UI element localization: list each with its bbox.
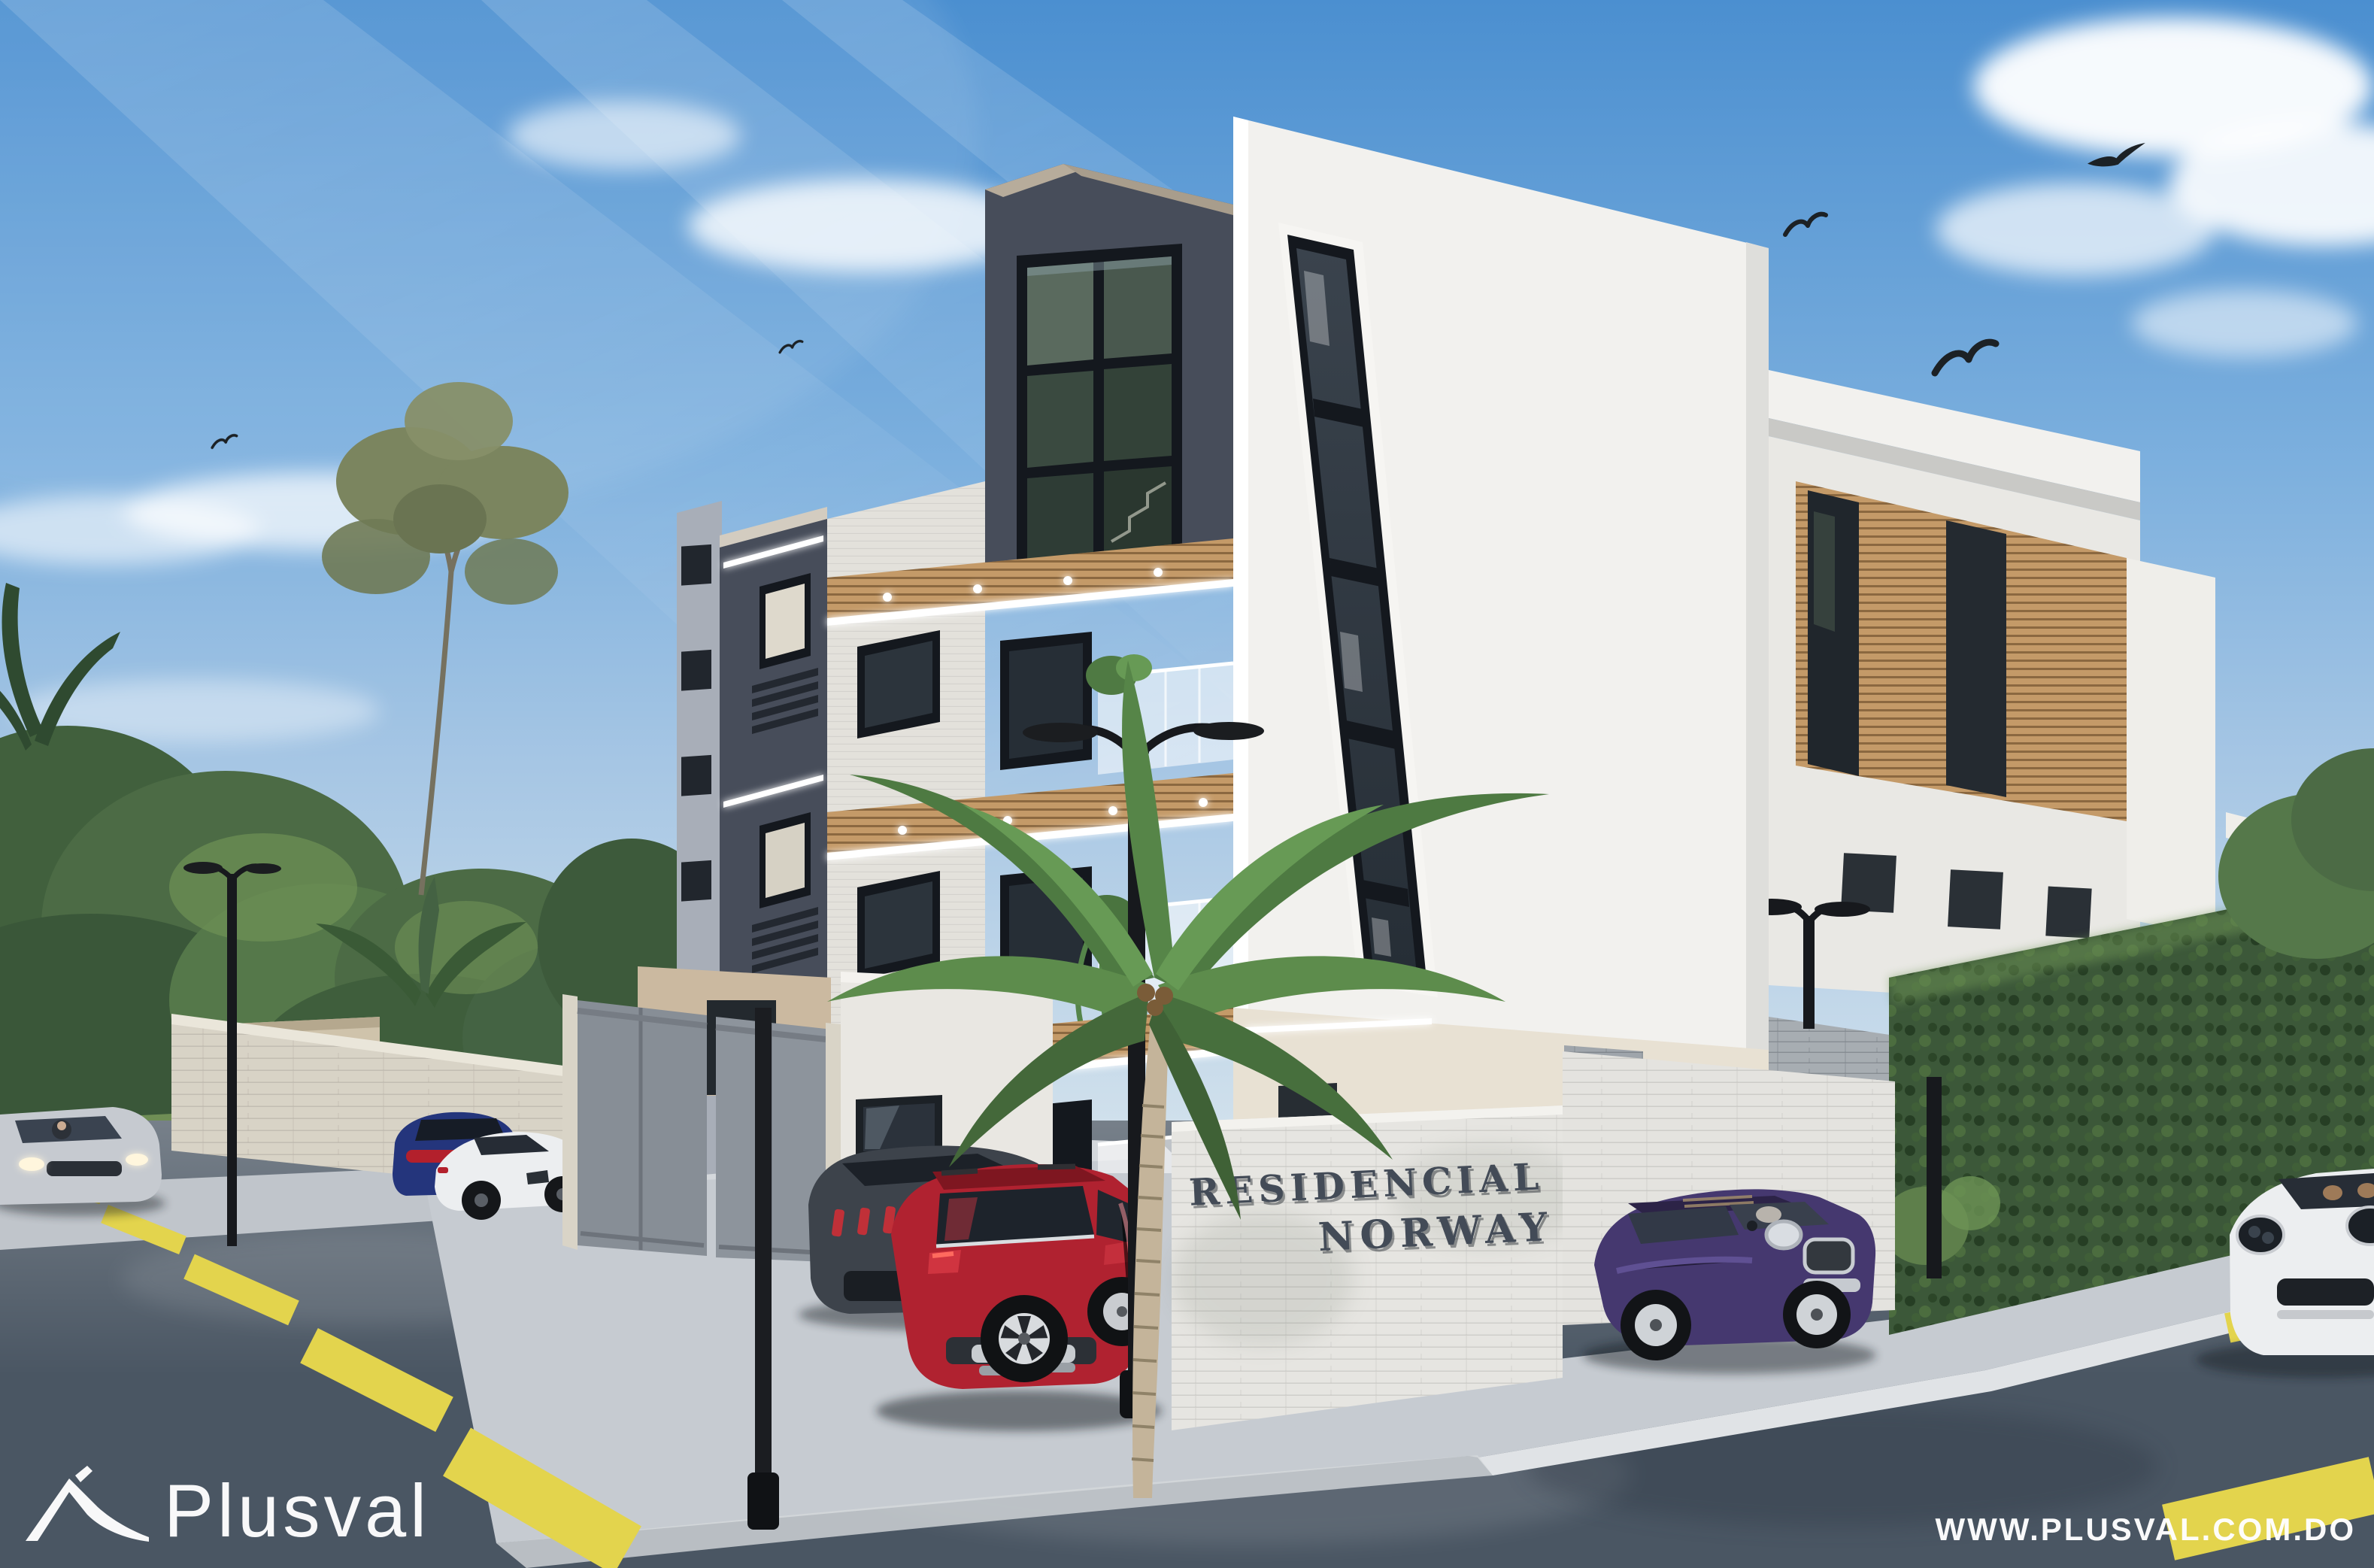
stairwell-window [1017,244,1182,573]
front-lip [2277,1310,2374,1319]
watermark-logo-text: Plusval [164,1476,430,1545]
entry-gate [562,994,841,1263]
render-canvas: RESIDENCIAL RESIDENCIAL NORWAY NORWAY [0,0,2374,1568]
hedge-pole [1927,1077,1942,1278]
headlight [19,1157,44,1171]
street-pole-base [747,1472,779,1530]
headlight [1766,1221,1801,1248]
lamp-head [1023,723,1098,742]
penthouse-monolith [985,164,1233,596]
sign-wall: RESIDENCIAL RESIDENCIAL NORWAY NORWAY [1172,1105,1587,1430]
watermark-logo: Plusval [23,1465,430,1545]
wheel-rear [981,1295,1068,1382]
grille [1805,1239,1853,1272]
street-pole [755,1008,772,1489]
front-intake [2277,1278,2374,1306]
headlight [126,1154,148,1166]
interior-hint [2323,1185,2342,1200]
wheel-front [1783,1281,1851,1348]
wing-window-small [2045,887,2091,939]
gate-post [562,994,578,1250]
headlight [2237,1216,2284,1254]
architectural-render-scene: RESIDENCIAL RESIDENCIAL NORWAY NORWAY [0,0,2374,1568]
watermark-url: WWW.PLUSVAL.COM.DO [1936,1512,2357,1548]
wing-window-small [1948,869,2003,930]
taillight [438,1167,448,1173]
mountain-icon [23,1465,152,1545]
mirror [1747,1221,1757,1231]
lamp-head [1193,722,1264,740]
car-red-suv [891,1164,1157,1389]
car-purple-mini [1594,1189,1875,1360]
car-silver-suv [0,1107,162,1205]
wing-window [1946,520,2006,797]
wheel-rear [1621,1290,1691,1360]
grille [47,1161,122,1176]
wing-pillar [2127,558,2215,937]
